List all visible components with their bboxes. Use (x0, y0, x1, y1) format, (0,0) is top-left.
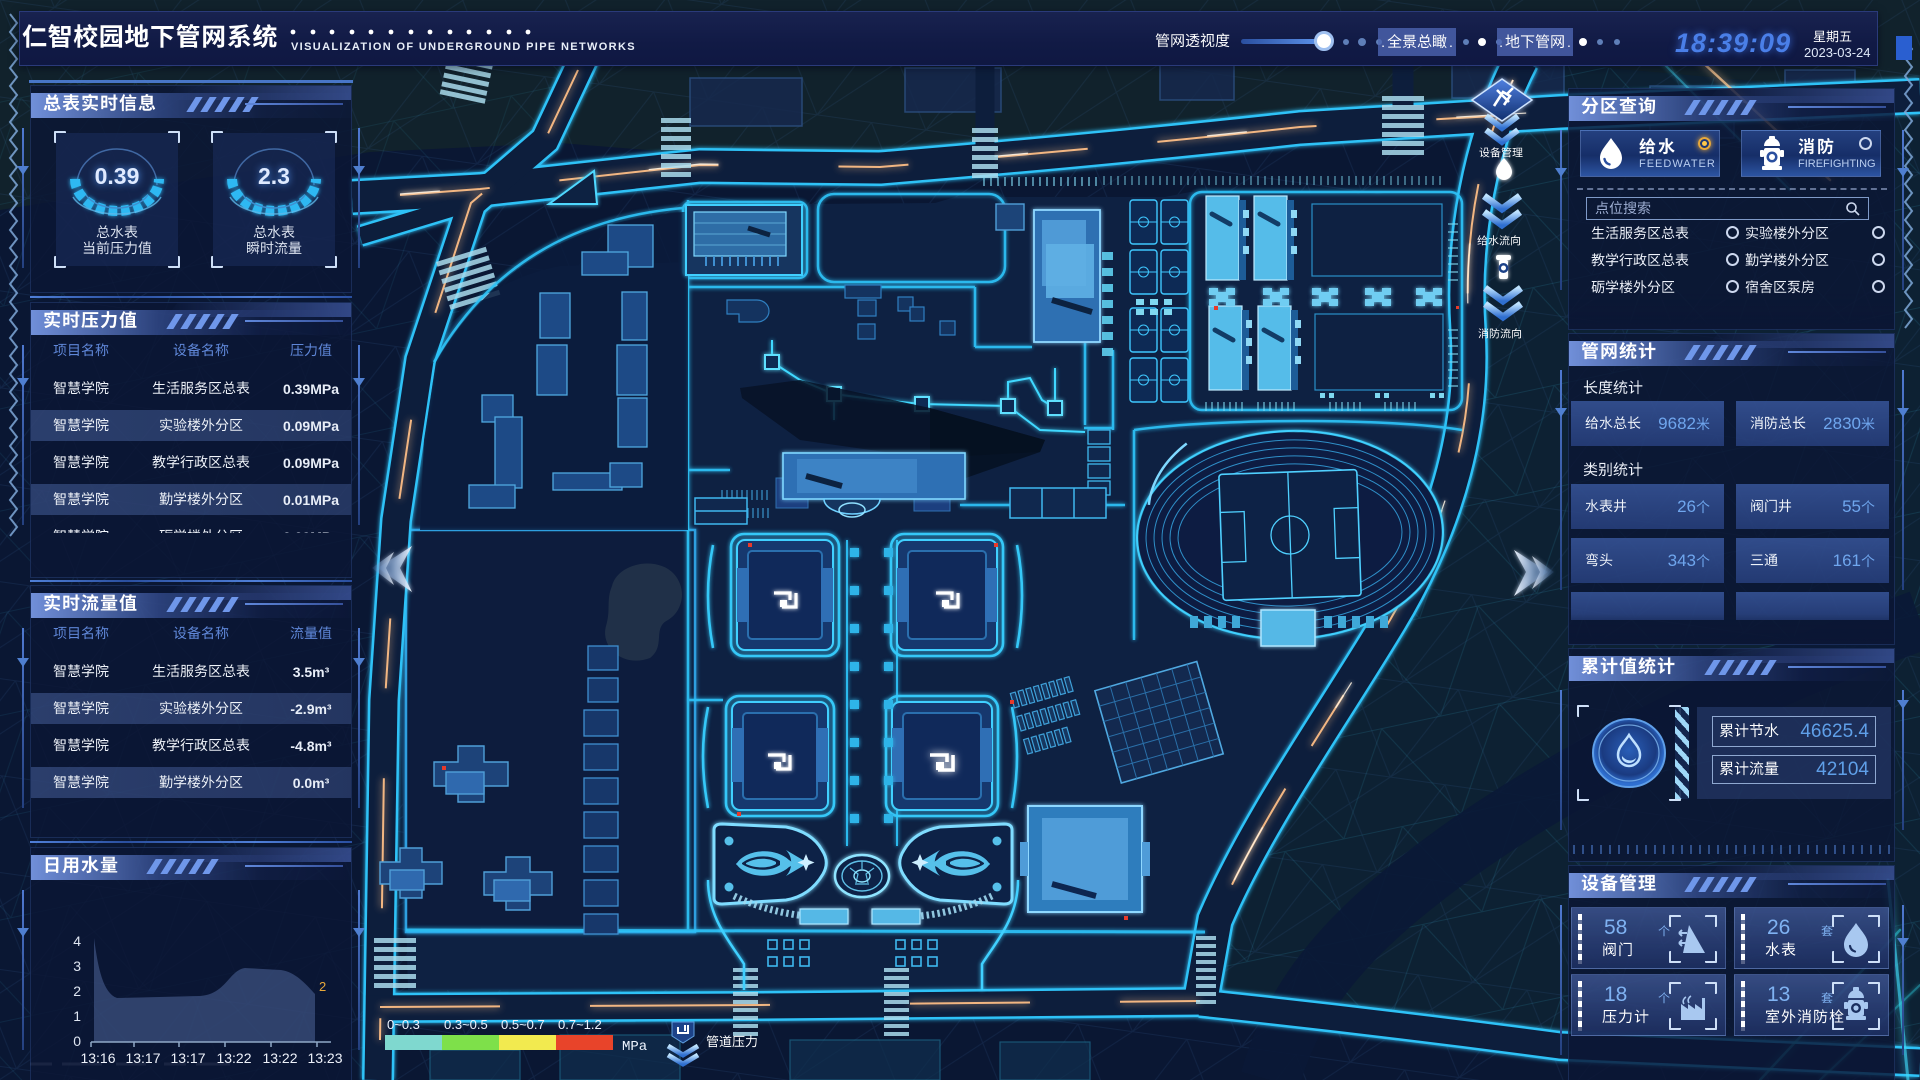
svg-text:0: 0 (73, 1033, 81, 1049)
svg-text:0.7~1.2: 0.7~1.2 (558, 1017, 602, 1032)
svg-text:2: 2 (73, 983, 81, 999)
svg-text:13:22: 13:22 (216, 1050, 251, 1066)
svg-text:0.3~0.5: 0.3~0.5 (444, 1017, 488, 1032)
svg-text:1: 1 (73, 1008, 81, 1024)
svg-text:13:17: 13:17 (125, 1050, 160, 1066)
svg-text:2: 2 (319, 979, 326, 994)
svg-text:0~0.3: 0~0.3 (387, 1017, 420, 1032)
svg-text:13:23: 13:23 (307, 1050, 342, 1066)
svg-text:13:22: 13:22 (262, 1050, 297, 1066)
svg-text:4: 4 (73, 933, 81, 949)
svg-text:13:17: 13:17 (170, 1050, 205, 1066)
svg-text:13:16: 13:16 (80, 1050, 115, 1066)
svg-text:3: 3 (73, 958, 81, 974)
svg-text:0.5~0.7: 0.5~0.7 (501, 1017, 545, 1032)
svg-text:MPa: MPa (622, 1039, 647, 1055)
